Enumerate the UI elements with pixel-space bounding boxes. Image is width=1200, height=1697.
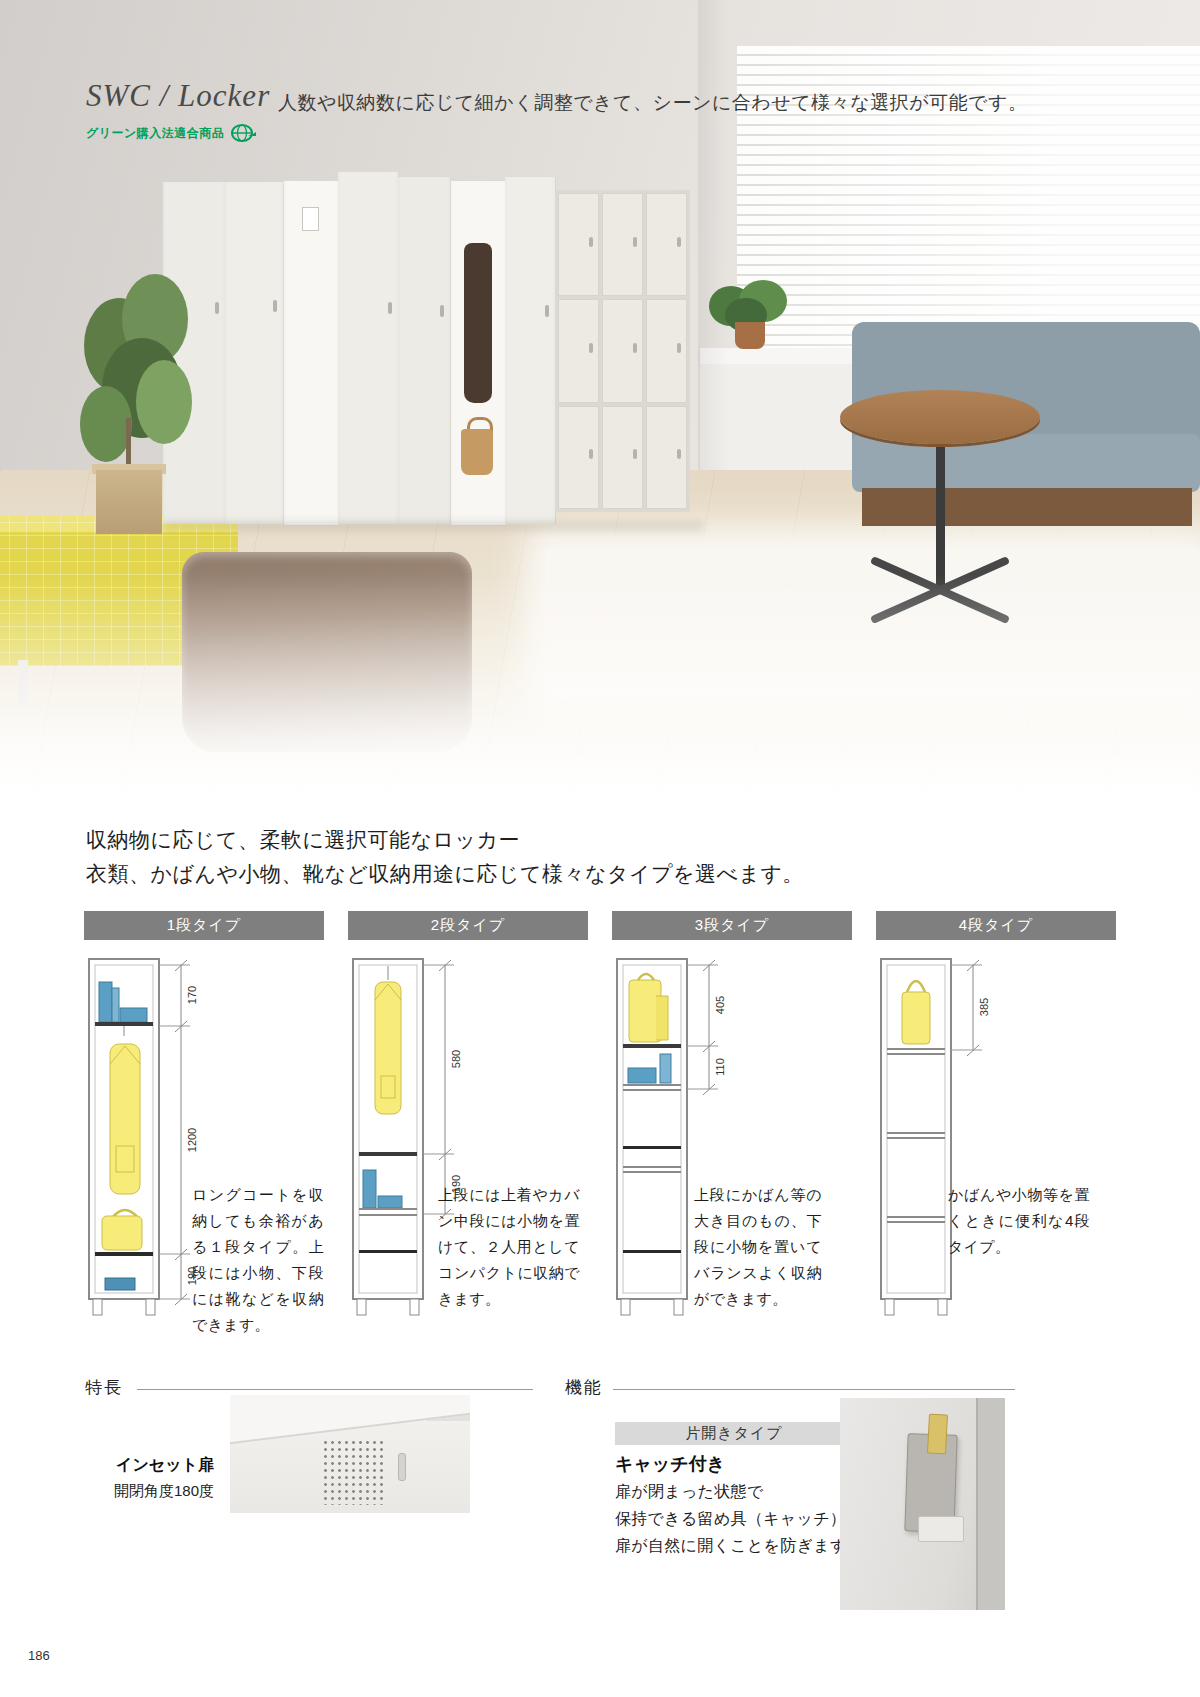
functions-rule (613, 1389, 1015, 1390)
single-door-type-tag: 片開きタイプ (615, 1422, 853, 1445)
door-edge (976, 1398, 1005, 1610)
grid-locker-door (558, 193, 599, 296)
potted-plant (78, 268, 198, 544)
grid-locker-door (602, 299, 643, 402)
latch-body (918, 1516, 964, 1542)
bench-leg (18, 660, 28, 704)
grid-locker-3x3 (555, 190, 690, 512)
type-header: 1段タイプ (84, 911, 324, 940)
plant-pot (735, 322, 765, 349)
type-column-2: 2段タイプ (348, 911, 588, 1360)
locker-unit (225, 182, 284, 524)
grid-locker-door (558, 299, 599, 402)
type-header: 3段タイプ (612, 911, 852, 940)
functions-heading: 機能 (565, 1376, 603, 1399)
locker-handle (273, 300, 277, 312)
latch-catch-brass (927, 1414, 948, 1455)
type-columns: 1段タイプ (84, 911, 1116, 1360)
type-body: 580 190 上段には上着やカバン中段には小物を置けて、２人用としてコンパクト… (348, 940, 588, 1360)
door-handle (398, 1453, 406, 1481)
locker-handle (545, 305, 549, 317)
green-law-badge-label: グリーン購入法適合商品 (86, 125, 224, 142)
features-rule (137, 1389, 533, 1390)
type-description: ロングコートを収納しても余裕がある１段タイプ。上段には小物、下段には靴などを収納… (192, 1182, 324, 1338)
type-body: 170 1200 190 ロングコートを収納しても余裕がある１段タイプ。上段には… (84, 940, 324, 1360)
locker-unit (398, 177, 451, 524)
locker-handle (388, 302, 392, 314)
name-card (302, 207, 319, 231)
type-header: 4段タイプ (876, 911, 1116, 940)
dim-label: 405 (714, 996, 726, 1014)
locker-handle (440, 305, 444, 317)
table-column (936, 438, 945, 588)
type-body: 405 110 上段にかばん等の大き目のもの、下段に小物を置いてバランスよく収納… (612, 940, 852, 1360)
green-law-icon (230, 124, 257, 142)
product-title: SWC / Locker (86, 78, 270, 114)
intro-subline: 衣類、かばんや小物、靴など収納用途に応じて様々なタイプを選べます。 (86, 860, 804, 888)
plant-foliage (136, 360, 192, 444)
grid-locker-door (646, 299, 687, 402)
intro-headline: 収納物に応じて、柔軟に選択可能なロッカー (86, 826, 520, 854)
dim-label: 110 (714, 1058, 726, 1076)
catch-latch-photo (840, 1398, 1005, 1610)
locker-shadow (163, 522, 703, 530)
catch-desc-line: 扉が自然に開くことを防ぎます。 (615, 1536, 863, 1557)
type-column-1: 1段タイプ (84, 911, 324, 1360)
grid-locker-door (646, 193, 687, 296)
round-table (840, 390, 1040, 625)
locker-unit (505, 177, 556, 524)
locker-unit-open-coat (450, 180, 507, 526)
type-description: 上段にかばん等の大き目のもの、下段に小物を置いてバランスよく収納ができます。 (694, 1182, 822, 1312)
grid-locker-door (602, 406, 643, 509)
wooden-planter (96, 470, 162, 534)
catch-desc-line: 扉が閉まった状態で (615, 1482, 764, 1503)
windowsill-plant (705, 280, 795, 350)
inset-door-photo (230, 1395, 470, 1513)
table-top (840, 390, 1040, 444)
catalog-page: SWC / Locker 人数や収納数に応じて細かく調整できて、シーンに合わせて… (0, 0, 1200, 1697)
dim-label: 580 (450, 1050, 462, 1068)
dim-label: 1200 (186, 1128, 198, 1152)
tan-bag (461, 429, 493, 475)
type-description: 上段には上着やカバン中段には小物を置けて、２人用としてコンパクトに収納できます。 (438, 1182, 580, 1312)
dim-label: 170 (186, 986, 198, 1004)
dim-label: 385 (978, 998, 990, 1016)
locker-handle (215, 302, 219, 314)
product-subtitle: 人数や収納数に応じて細かく調整できて、シーンに合わせて様々な選択が可能です。 (278, 90, 1027, 116)
green-law-badge: グリーン購入法適合商品 (86, 124, 257, 142)
brown-ottoman (182, 552, 472, 752)
door-perforation (322, 1439, 386, 1505)
hanging-coat (464, 243, 492, 403)
feature-caption-sub: 開閉角度180度 (114, 1482, 214, 1501)
locker-unit-open (283, 180, 340, 526)
plant-foliage (80, 386, 132, 462)
type-description: かばんや小物等を置くときに便利な4段タイプ。 (948, 1182, 1090, 1260)
type-column-4: 4段タイプ (876, 911, 1116, 1360)
features-heading: 特長 (85, 1376, 123, 1399)
grid-locker-door (602, 193, 643, 296)
locker-row (163, 172, 703, 524)
catch-title: キャッチ付き (615, 1452, 725, 1476)
type-column-3: 3段タイプ (612, 911, 852, 1360)
hero-photo: SWC / Locker 人数や収納数に応じて細かく調整できて、シーンに合わせて… (0, 0, 1200, 820)
type-body: 385 かばんや小物等を置くときに便利な4段タイプ。 (876, 940, 1116, 1360)
page-number: 186 (28, 1648, 50, 1663)
feature-caption-title: インセット扉 (116, 1455, 214, 1476)
locker-unit (338, 172, 399, 524)
grid-locker-door (558, 406, 599, 509)
grid-locker-door (646, 406, 687, 509)
type-header: 2段タイプ (348, 911, 588, 940)
locker-diagram-4dan: 385 (876, 956, 1026, 1332)
